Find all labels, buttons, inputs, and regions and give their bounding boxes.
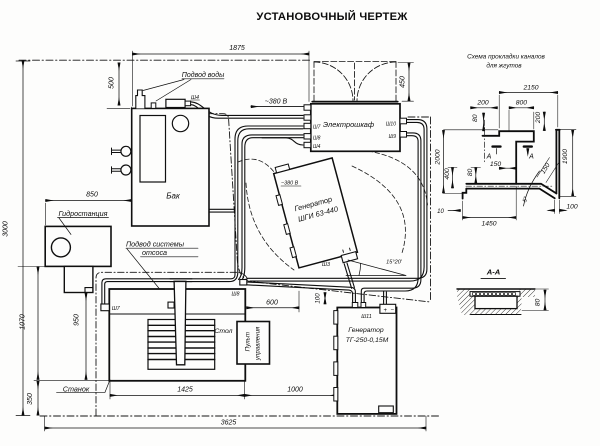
svg-text:150: 150 [490, 161, 502, 168]
svg-text:УСТАНОВОЧНЫЙ ЧЕРТЕЖ: УСТАНОВОЧНЫЙ ЧЕРТЕЖ [256, 10, 408, 23]
svg-text:−: − [391, 307, 395, 313]
svg-text:3625: 3625 [221, 420, 237, 427]
svg-text:управления: управления [255, 326, 262, 361]
svg-text:Ш4: Ш4 [313, 144, 321, 150]
svg-text:800: 800 [516, 100, 528, 107]
svg-text:Пульт: Пульт [245, 332, 252, 351]
svg-text:ТГ-250-0,15М: ТГ-250-0,15М [346, 337, 389, 344]
svg-text:Стол: Стол [215, 328, 233, 335]
svg-text:Ш11: Ш11 [361, 314, 372, 320]
svg-text:80: 80 [535, 299, 542, 307]
svg-text:100: 100 [315, 293, 322, 304]
svg-text:Ш7: Ш7 [112, 306, 121, 312]
svg-text:Ш10: Ш10 [386, 121, 396, 127]
svg-text:450: 450 [399, 76, 406, 88]
svg-text:Ш8: Ш8 [232, 292, 240, 298]
svg-text:Электрошкаф: Электрошкаф [323, 120, 374, 129]
svg-text:Ш8: Ш8 [313, 135, 321, 141]
svg-text:1900: 1900 [562, 149, 569, 164]
svg-text:Ш9: Ш9 [389, 134, 397, 140]
svg-text:А-А: А-А [486, 268, 501, 277]
svg-text:для жгутов: для жгутов [486, 62, 522, 70]
svg-text:Подвод воды: Подвод воды [182, 71, 225, 79]
svg-text:отсоса: отсоса [142, 248, 167, 257]
svg-text:100: 100 [566, 204, 578, 211]
svg-text:Ш7: Ш7 [313, 125, 321, 131]
svg-text:2150: 2150 [522, 85, 538, 92]
svg-text:500: 500 [109, 77, 116, 89]
svg-text:400: 400 [444, 168, 451, 180]
svg-text:1450: 1450 [481, 221, 496, 228]
svg-text:Схема прокладки каналов: Схема прокладки каналов [467, 53, 545, 61]
svg-text:А: А [486, 154, 492, 161]
svg-text:3000: 3000 [3, 221, 10, 237]
svg-text:15°20': 15°20' [386, 260, 403, 266]
svg-text:Бак: Бак [166, 192, 181, 201]
svg-text:+: + [384, 308, 388, 314]
svg-text:350: 350 [27, 393, 34, 405]
svg-text:1000: 1000 [287, 387, 303, 394]
svg-text:200: 200 [476, 100, 489, 107]
svg-text:850: 850 [86, 192, 98, 199]
svg-text:Ш3: Ш3 [322, 262, 330, 268]
svg-text:80: 80 [467, 169, 474, 177]
svg-text:Генератор: Генератор [348, 327, 384, 334]
svg-text:80: 80 [472, 114, 479, 122]
svg-text:А: А [528, 154, 534, 161]
svg-text:Подвод системы: Подвод системы [126, 240, 185, 249]
svg-text:200: 200 [535, 112, 542, 125]
svg-text:950: 950 [74, 314, 81, 326]
svg-text:−380 В: −380 В [281, 181, 299, 187]
svg-text:1875: 1875 [229, 45, 245, 52]
svg-text:1070: 1070 [20, 314, 27, 330]
svg-text:~380 В: ~380 В [265, 99, 288, 106]
svg-text:10: 10 [437, 209, 444, 215]
svg-text:1425: 1425 [177, 387, 193, 394]
svg-text:Гидростанция: Гидростанция [59, 209, 108, 218]
svg-text:2000: 2000 [435, 149, 442, 165]
svg-text:600: 600 [266, 300, 278, 307]
